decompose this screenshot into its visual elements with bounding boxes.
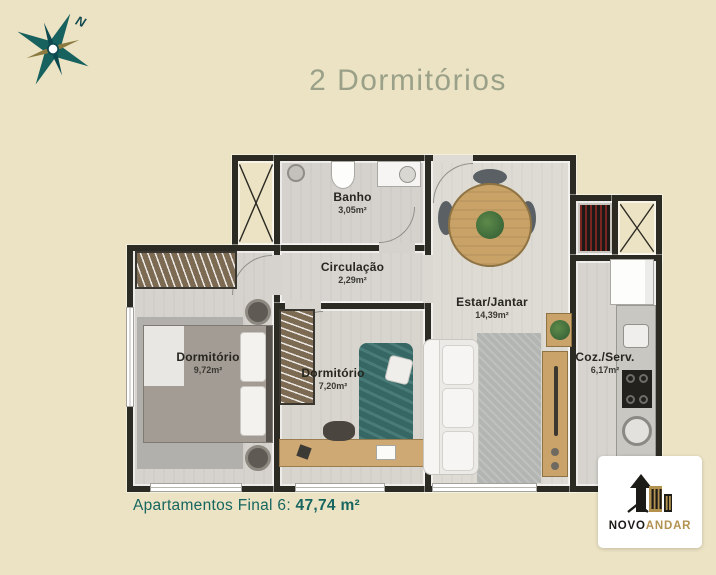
room-name: Dormitório (133, 351, 283, 365)
shaft-top (232, 155, 280, 251)
label-banho: Banho 3,05m² (280, 191, 425, 215)
washing-machine (622, 416, 652, 446)
burner (626, 374, 635, 383)
novoandar-logo-icon (626, 472, 674, 516)
laptop (376, 445, 396, 460)
floorplan-page: N 2 Dormitórios (0, 0, 716, 575)
window-dorm1-bottom (150, 483, 242, 492)
water-heater (578, 203, 612, 253)
room-area: 7,20m² (277, 381, 389, 391)
sofa-cushion (442, 431, 474, 471)
plant (550, 320, 570, 340)
headboard (266, 326, 272, 442)
label-circulacao: Circulação 2,29m² (280, 261, 425, 285)
desk-chair (323, 421, 355, 441)
floor-plan: Banho 3,05m² Circulação 2,29m² Estar/Jan… (127, 155, 662, 492)
room-area: 14,39m² (427, 310, 557, 320)
brand-text: NOVOANDAR (609, 520, 692, 532)
room-area: 6,17m² (555, 365, 655, 375)
apartment-area-text: Apartamentos Final 6: 47,74 m² (133, 497, 360, 515)
burner (626, 395, 635, 404)
sideboard-handle (554, 366, 558, 436)
shaft-right (612, 195, 662, 261)
sofa (423, 339, 479, 475)
shaft-x-icon (238, 161, 274, 245)
sideboard-knob (551, 462, 559, 470)
bed-dorm2 (359, 343, 413, 449)
room-name: Banho (280, 191, 425, 205)
nightstand (245, 299, 271, 325)
apartment-area-label: Apartamentos Final 6: (133, 497, 291, 514)
bathroom-sink (377, 161, 421, 187)
toilet (331, 161, 355, 189)
desk-item (296, 444, 311, 459)
sideboard-knob (551, 448, 559, 456)
sofa-cushion (442, 388, 474, 428)
brand-text-secondary: ANDAR (646, 520, 692, 532)
apartment-area-value: 47,74 m² (296, 497, 360, 514)
label-dormitorio-1: Dormitório 9,72m² (133, 351, 283, 375)
burner (639, 374, 648, 383)
stove (622, 370, 652, 408)
wardrobe-dorm1 (135, 251, 237, 289)
fridge (610, 259, 654, 305)
table-plant (476, 211, 504, 239)
brand-text-primary: NOVO (609, 520, 646, 532)
door-gap-entrance (433, 155, 473, 163)
room-area: 9,72m² (133, 365, 283, 375)
desk-dorm2 (279, 439, 425, 467)
room-name: Estar/Jantar (427, 296, 557, 310)
window-dorm2-bottom (295, 483, 385, 492)
sink-bowl (399, 166, 416, 183)
room-name: Circulação (280, 261, 425, 275)
label-estar-jantar: Estar/Jantar 14,39m² (427, 296, 557, 320)
sofa-cushion (442, 345, 474, 385)
page-title: 2 Dormitórios (100, 64, 716, 98)
room-name: Dormitório (277, 367, 389, 381)
nightstand (245, 445, 271, 471)
label-dormitorio-2: Dormitório 7,20m² (277, 367, 389, 391)
window-estar-bottom (432, 483, 537, 492)
burner (639, 395, 648, 404)
label-coz-serv: Coz./Serv. 6,17m² (555, 351, 655, 375)
room-area: 3,05m² (280, 205, 425, 215)
room-name: Coz./Serv. (555, 351, 655, 365)
novoandar-logo-card: NOVOANDAR (598, 456, 702, 548)
kitchen-sink (623, 324, 649, 348)
compass-rose: N (10, 6, 96, 92)
pillow (240, 386, 266, 436)
door-gap-banho (379, 243, 415, 253)
shaft-x-icon (618, 201, 656, 255)
shower-head (287, 164, 305, 182)
room-area: 2,29m² (280, 275, 425, 285)
rug-estar (477, 333, 541, 483)
sofa-back (424, 340, 440, 474)
bed-dorm1 (143, 325, 273, 443)
